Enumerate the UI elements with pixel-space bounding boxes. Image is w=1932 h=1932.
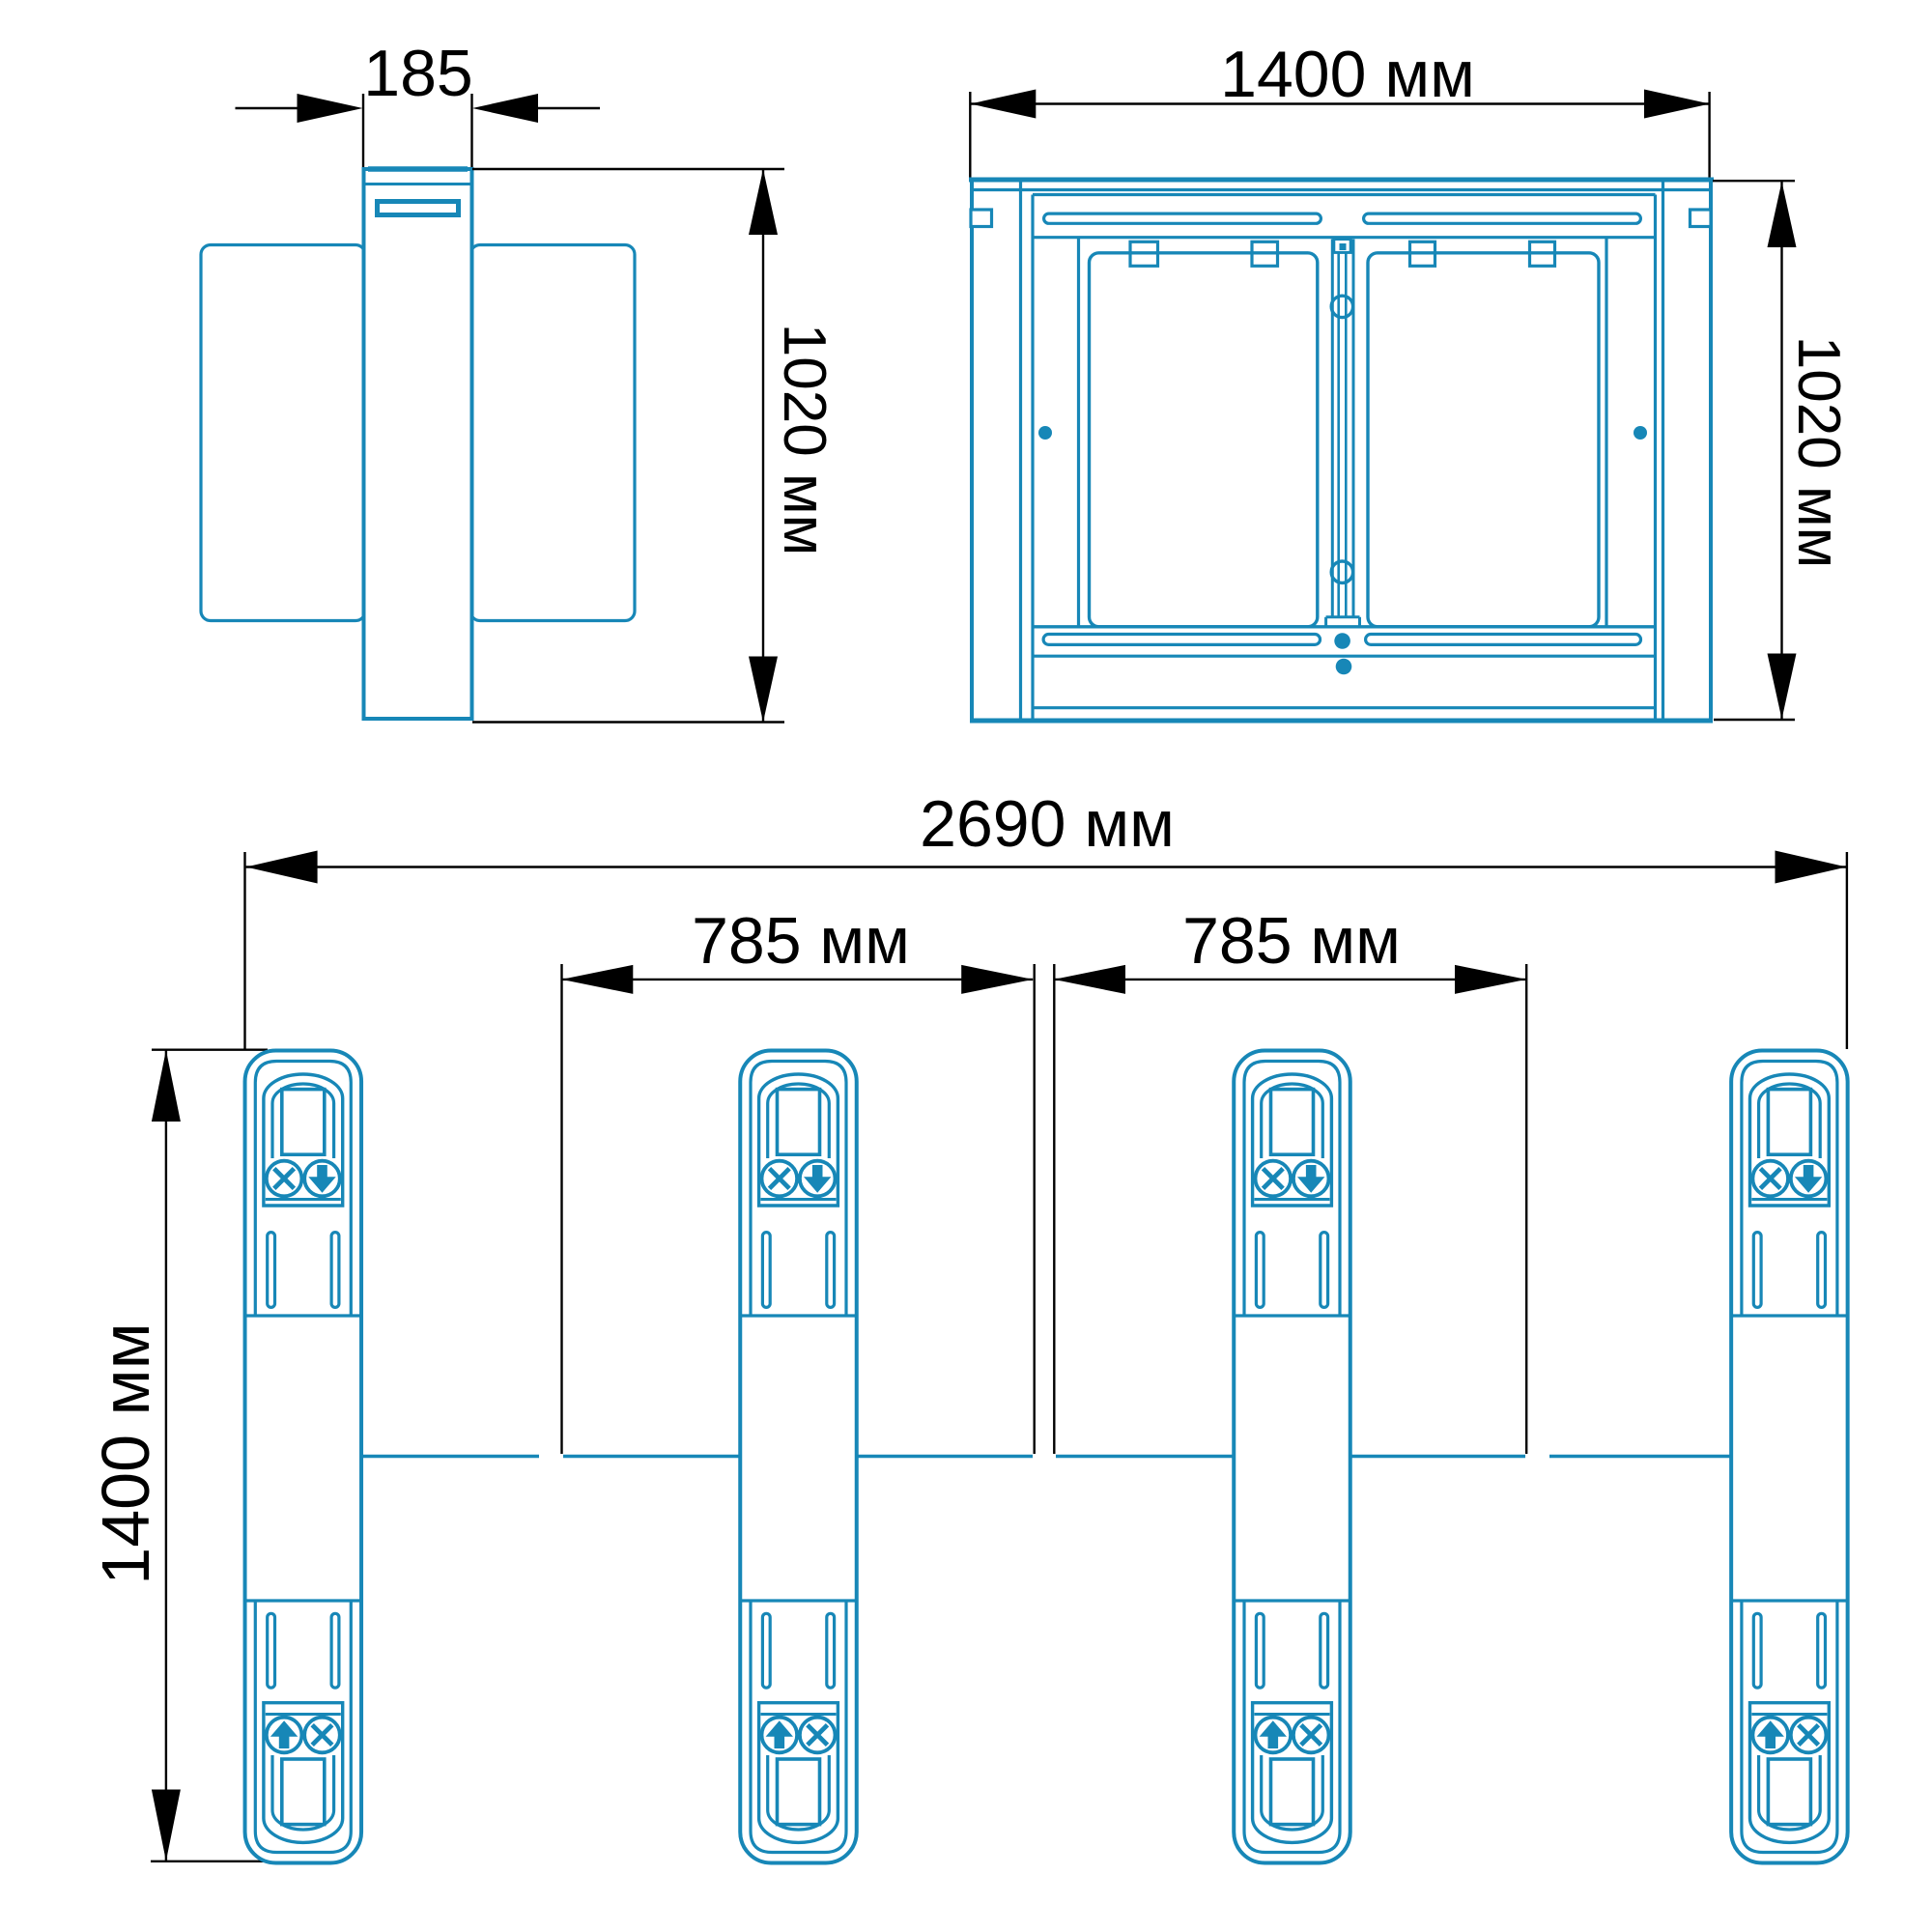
svg-text:1400 мм: 1400 мм (88, 1322, 163, 1584)
svg-text:1020 мм: 1020 мм (771, 324, 838, 555)
svg-text:1400 мм: 1400 мм (1220, 38, 1475, 111)
svg-text:185: 185 (363, 37, 472, 110)
svg-text:2690 мм: 2690 мм (920, 787, 1175, 861)
svg-text:1020 мм: 1020 мм (1785, 336, 1852, 568)
svg-text:785 мм: 785 мм (1182, 904, 1401, 978)
svg-text:785 мм: 785 мм (692, 904, 910, 978)
